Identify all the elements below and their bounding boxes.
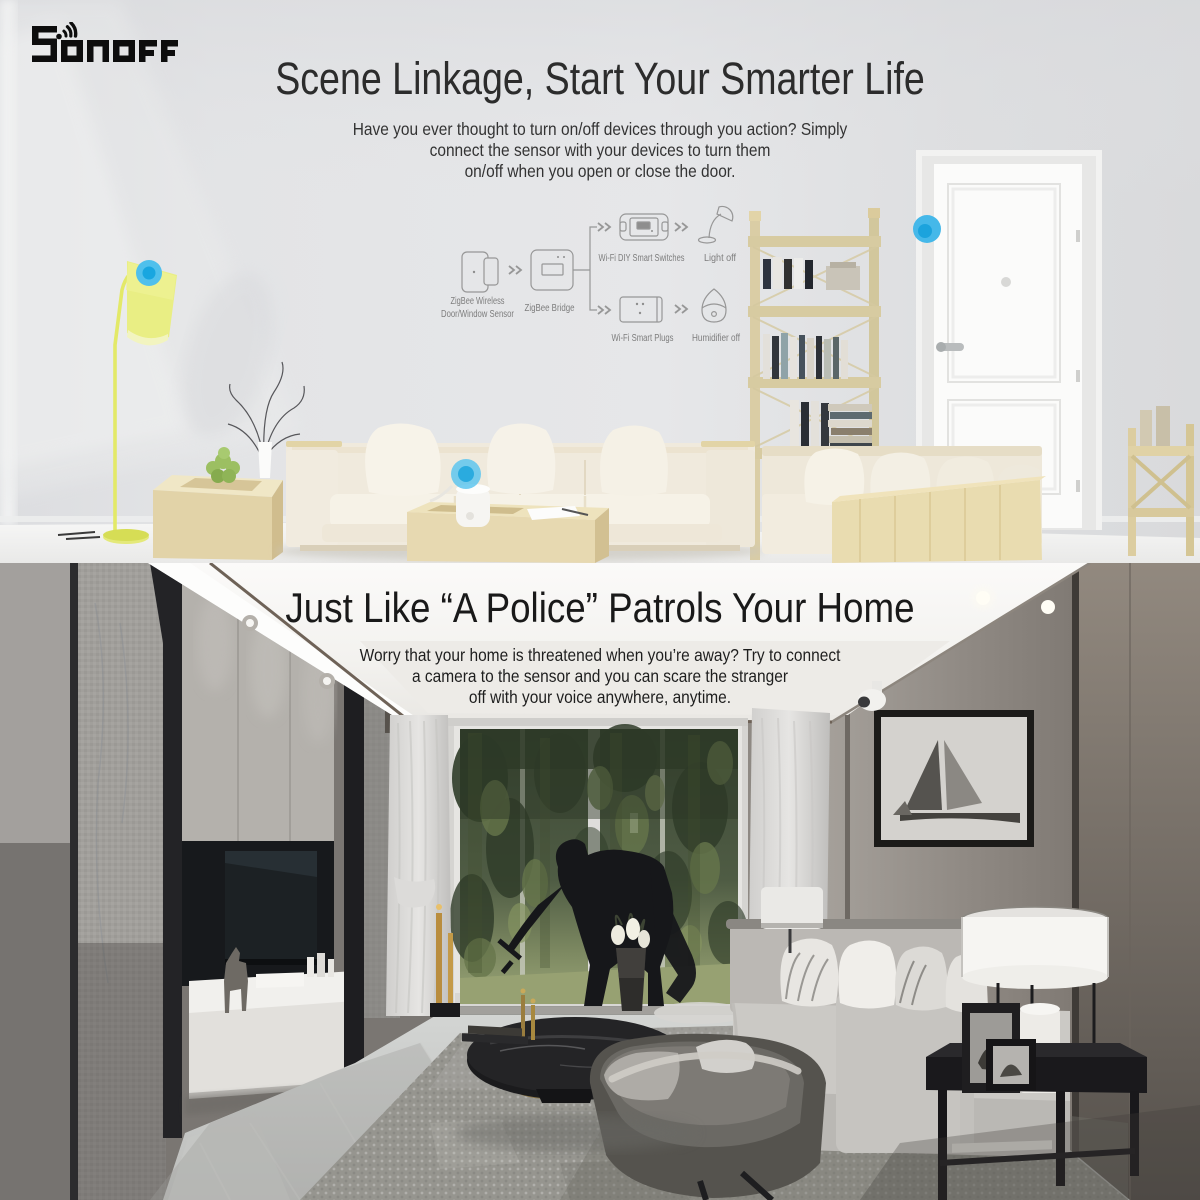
svg-text:ZigBee Bridge: ZigBee Bridge bbox=[525, 303, 575, 314]
svg-text:Wi-Fi DIY Smart Switches: Wi-Fi DIY Smart Switches bbox=[599, 253, 685, 264]
svg-text:Wi-Fi Smart Plugs: Wi-Fi Smart Plugs bbox=[612, 333, 674, 344]
svg-text:Humidifier off: Humidifier off bbox=[692, 333, 740, 344]
svg-text:ZigBee Wireless: ZigBee Wireless bbox=[451, 296, 505, 307]
svg-text:Door/Window Sensor: Door/Window Sensor bbox=[441, 309, 515, 320]
svg-text:Light off: Light off bbox=[704, 253, 736, 264]
